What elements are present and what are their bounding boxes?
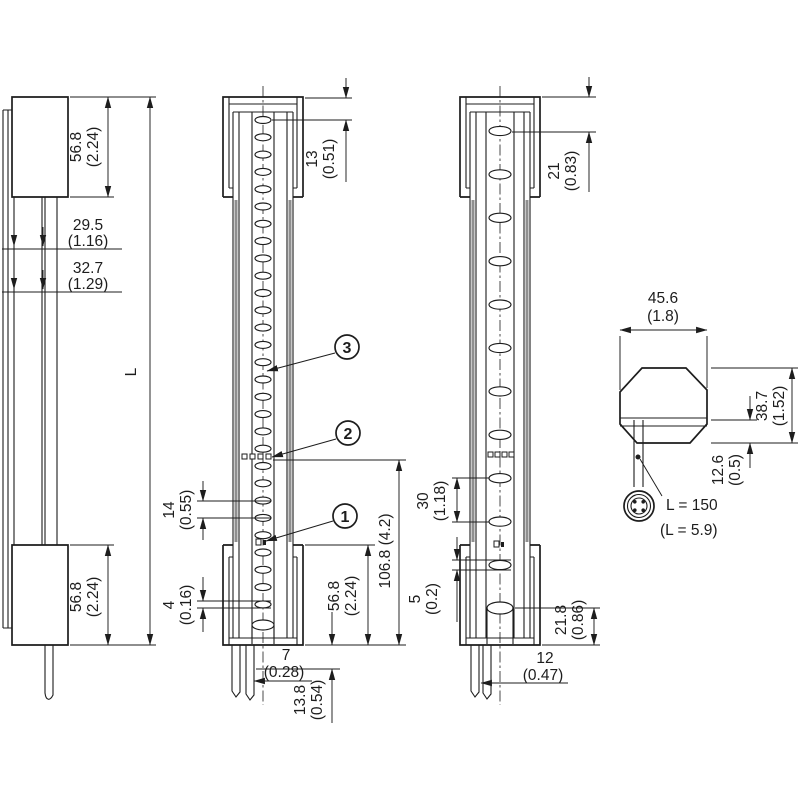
callouts: 3 2 1 bbox=[266, 335, 360, 541]
dim-fine-bottom-cap-mm: 56.8 bbox=[326, 581, 343, 611]
technical-drawing: 56.8 (2.24) 29.5 (1.16) 32.7 (1.29) L 56… bbox=[0, 0, 800, 800]
side-view-body bbox=[3, 97, 68, 699]
dim-side-top-cap-mm: 56.8 bbox=[68, 132, 85, 162]
cable-length-inch-label: (L = 5.9) bbox=[660, 522, 718, 539]
callout-2: 2 bbox=[336, 421, 360, 445]
dim-side-top-cap-inch: (2.24) bbox=[85, 127, 102, 168]
front-fine-dimensions: 13 (0.51) 14 (0.55) 4 (0.16) 106.8 (4.2)… bbox=[161, 78, 406, 723]
dim-coarse-first-beam-inch: (0.83) bbox=[563, 151, 580, 192]
lens-column-fine bbox=[255, 117, 271, 608]
led-indicator-row-coarse bbox=[488, 452, 514, 457]
dim-section-width-inch: (1.8) bbox=[647, 308, 679, 325]
bottom-lens-cylinder bbox=[487, 602, 513, 614]
dim-section-cable-zone-inch: (0.5) bbox=[727, 454, 744, 486]
svg-text:2: 2 bbox=[344, 426, 353, 443]
callout-3: 3 bbox=[335, 335, 359, 359]
dim-fine-beam-pitch-inch: (0.55) bbox=[178, 490, 195, 531]
display-indicator-fine bbox=[256, 539, 266, 545]
dim-section-height-mm: 38.7 bbox=[754, 391, 771, 421]
dim-side-upper-offset-mm: 29.5 bbox=[73, 217, 103, 234]
side-view: 56.8 (2.24) 29.5 (1.16) 32.7 (1.29) L 56… bbox=[2, 97, 156, 699]
dim-coarse-cable-offset-inch: (0.47) bbox=[523, 667, 564, 684]
dim-coarse-lens-height-inch: (0.2) bbox=[424, 583, 441, 615]
dim-coarse-lens-height-mm: 5 bbox=[407, 595, 424, 604]
dim-side-lower-offset-mm: 32.7 bbox=[73, 260, 103, 277]
dim-side-lower-offset-inch: (1.29) bbox=[68, 276, 109, 293]
dim-fine-first-beam-mm: 13 bbox=[304, 150, 321, 167]
dim-fine-cable-offset-inch: (0.28) bbox=[264, 664, 305, 681]
side-view-dimensions: 56.8 (2.24) 29.5 (1.16) 32.7 (1.29) L 56… bbox=[2, 97, 156, 645]
dim-section-height-inch: (1.52) bbox=[771, 386, 788, 427]
cable-exit-dot bbox=[636, 455, 641, 460]
dim-fine-cable-drop-inch: (0.54) bbox=[309, 680, 326, 721]
bottom-lens-cylinder bbox=[252, 620, 274, 630]
dim-fine-lens-height-mm: 4 bbox=[161, 600, 178, 609]
front-coarse-dimensions: 21 (0.83) 30 (1.18) 5 (0.2) 21.8 (0.86) … bbox=[407, 77, 600, 684]
svg-text:3: 3 bbox=[343, 340, 352, 357]
dim-side-bottom-cap-inch: (2.24) bbox=[85, 577, 102, 618]
front-view-coarse: 21 (0.83) 30 (1.18) 5 (0.2) 21.8 (0.86) … bbox=[407, 77, 600, 705]
dim-side-bottom-cap-mm: 56.8 bbox=[68, 582, 85, 612]
length-label: L bbox=[123, 367, 140, 376]
led-indicator-row-fine bbox=[242, 454, 271, 459]
dim-coarse-first-beam-mm: 21 bbox=[546, 162, 563, 179]
dim-side-upper-offset-inch: (1.16) bbox=[68, 233, 109, 250]
cross-section-view: 45.6 (1.8) 38.7 (1.52) 12.6 (0.5) L = 15… bbox=[620, 290, 798, 539]
callout-1: 1 bbox=[333, 504, 357, 528]
dim-fine-cable-drop-mm: 13.8 bbox=[292, 685, 309, 715]
dim-fine-bottom-cap-inch: (2.24) bbox=[343, 576, 360, 617]
side-view-cable bbox=[45, 645, 53, 699]
display-indicator-coarse bbox=[494, 541, 504, 547]
dim-fine-cable-offset-mm: 7 bbox=[282, 647, 291, 664]
dim-fine-beam-pitch-mm: 14 bbox=[161, 501, 178, 519]
dim-coarse-cable-offset-mm: 12 bbox=[536, 650, 553, 667]
front-fine-cable bbox=[232, 645, 254, 700]
front-coarse-cable bbox=[471, 645, 491, 699]
dim-coarse-last-beam-mm: 21.8 bbox=[553, 605, 570, 635]
dim-fine-lens-height-inch: (0.16) bbox=[178, 585, 195, 626]
dim-fine-first-beam-inch: (0.51) bbox=[321, 139, 338, 180]
section-cable bbox=[634, 420, 643, 487]
front-view-fine: 13 (0.51) 14 (0.55) 4 (0.16) 106.8 (4.2)… bbox=[161, 78, 406, 723]
dim-coarse-last-beam-inch: (0.86) bbox=[570, 600, 587, 641]
dim-fine-lower-section: 106.8 (4.2) bbox=[377, 514, 394, 589]
svg-text:1: 1 bbox=[341, 509, 350, 526]
m12-connector-icon bbox=[624, 491, 654, 521]
dim-section-width-mm: 45.6 bbox=[648, 290, 678, 307]
dim-section-cable-zone-mm: 12.6 bbox=[710, 455, 727, 485]
cable-length-label: L = 150 bbox=[666, 497, 718, 514]
dim-coarse-beam-pitch-inch: (1.18) bbox=[432, 481, 449, 522]
dim-coarse-beam-pitch-mm: 30 bbox=[415, 492, 432, 510]
section-profile bbox=[620, 368, 707, 487]
